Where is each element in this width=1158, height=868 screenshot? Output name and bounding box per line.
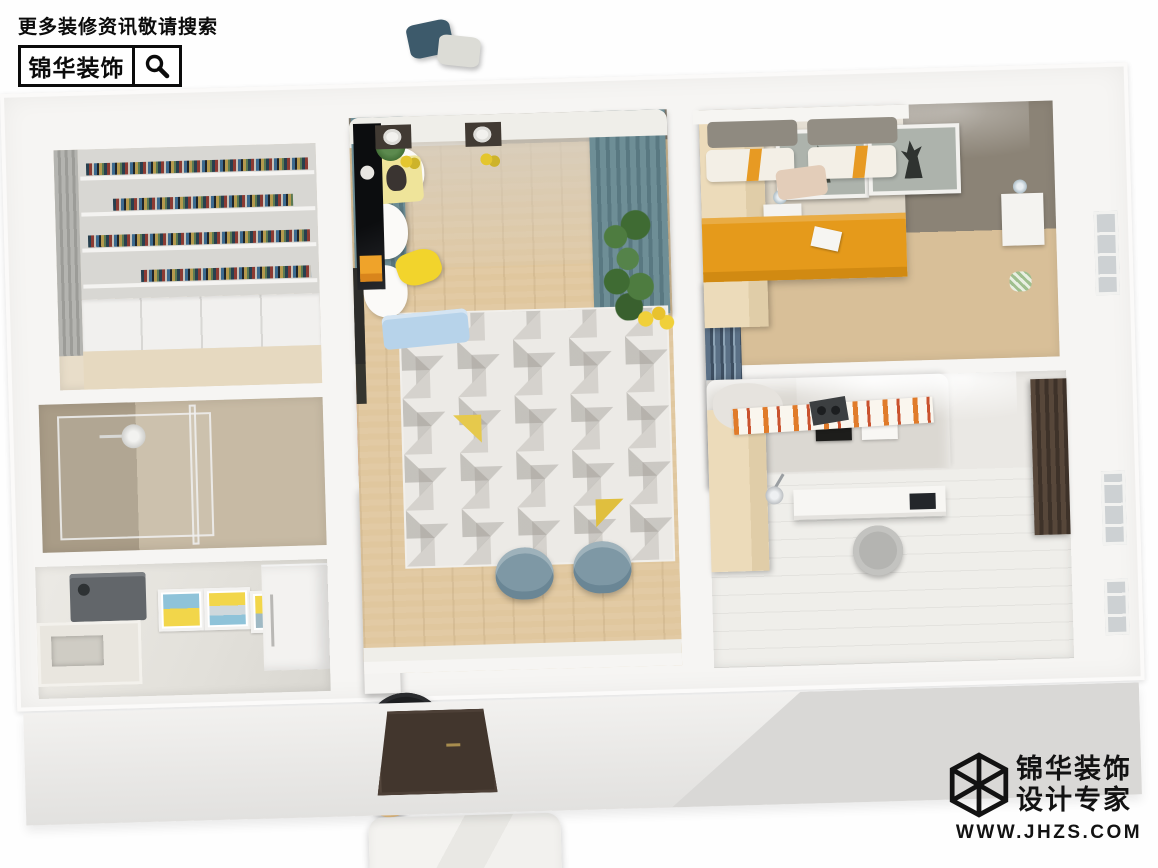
brand-search-box: 锦华装饰 [18, 45, 182, 87]
yellow-flowers [632, 305, 677, 332]
entry-door [375, 708, 497, 795]
brand-name: 锦华装饰 [21, 48, 132, 84]
rug-yellow-triangle [453, 415, 482, 444]
green-striped-pillow [1009, 271, 1032, 292]
gray-back-pillows [707, 120, 798, 149]
search-hint-text: 更多装修资讯敬请搜索 [18, 12, 218, 39]
apartment-floorplate: LOVE PEACE you & me [0, 62, 1145, 711]
marble-dining-table [368, 813, 562, 868]
dining-chair [495, 547, 554, 601]
facade-window [1094, 211, 1120, 296]
wall-art-frame [204, 587, 251, 630]
room-second-bedroom: LOVE PEACE you & me [706, 370, 1074, 668]
room-living [349, 109, 682, 674]
website-url: WWW.JHZS.COM [948, 822, 1150, 844]
water-heater [69, 572, 146, 622]
nightstand [1001, 193, 1044, 246]
bedside-lamp [1013, 179, 1027, 193]
room-bathroom [39, 397, 327, 553]
search-icon [132, 48, 179, 84]
cube-logo-icon [948, 752, 1010, 818]
brown-curtain [1030, 378, 1070, 535]
deco-pillow-gray [437, 34, 482, 68]
apartment-shell: LOVE PEACE you & me [0, 62, 1148, 829]
watermark-top: 更多装修资讯敬请搜索 锦华装饰 [18, 12, 218, 87]
room-master-bedroom [699, 101, 1060, 367]
facade-window [1101, 471, 1127, 546]
room-utility [35, 559, 331, 699]
bookshelf-wall [78, 143, 320, 300]
art-print [209, 592, 246, 625]
wall-art-frame [158, 588, 205, 631]
art-print [163, 594, 200, 627]
room-study [54, 143, 323, 390]
scene-canvas: LOVE PEACE you & me [0, 0, 1158, 868]
potted-plant [597, 208, 658, 322]
white-desk [793, 486, 946, 520]
facade-window [1104, 579, 1130, 636]
geometric-rug [400, 307, 673, 566]
table-flowers [398, 152, 423, 173]
study-floor [83, 345, 322, 390]
study-cabinets [82, 293, 321, 352]
laundry-counter [37, 620, 143, 687]
watermark-bottom: 锦华装饰 设计专家 WWW.JHZS.COM [948, 752, 1150, 844]
laptop [909, 493, 935, 510]
deer-silhouette [898, 138, 929, 179]
logo-brand-line1: 锦华装饰 [1016, 754, 1132, 785]
orange-blanket [702, 213, 908, 283]
dining-chair [573, 540, 632, 594]
logo-brand-line2: 设计专家 [1016, 785, 1132, 816]
rug-yellow-triangle [596, 499, 625, 528]
cabinet-fridge [261, 563, 330, 671]
table-flowers [478, 150, 503, 171]
yellow-storage-box [360, 255, 383, 282]
